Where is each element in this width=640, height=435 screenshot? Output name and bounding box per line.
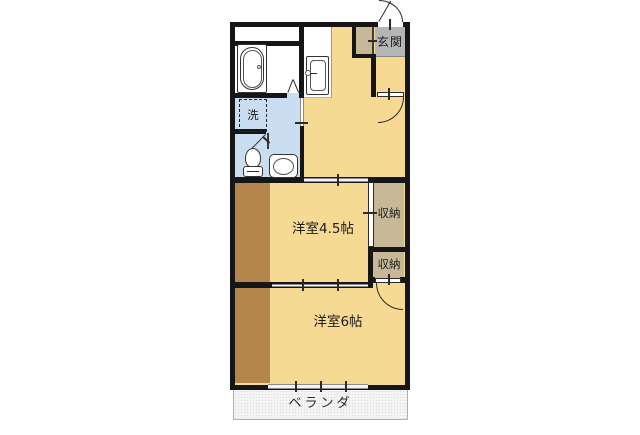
wash-basin-bowl: [273, 158, 294, 175]
toilet-icon: [245, 148, 261, 168]
balcony-window-tick-1: [295, 381, 297, 392]
balcony-window-tick-3: [345, 381, 347, 392]
kitchen-sink-basin: [310, 60, 326, 91]
room-45-label: 洋室4.5帖: [268, 222, 378, 237]
flooring-strip-room6: [235, 288, 270, 383]
shoe-cabinet-bottom-wall: [352, 54, 373, 58]
balcony-window: [268, 384, 368, 389]
storage-lower-label: 収納: [369, 258, 409, 271]
bathroom-bottom-wall: [233, 93, 287, 98]
entrance-door-arc-icon: [379, 0, 403, 22]
entrance-label: 玄関: [373, 36, 407, 49]
kitchen-faucet-spout: [310, 73, 317, 74]
washroom-right-wall: [300, 126, 304, 182]
storage-bottom-wall-left: [368, 277, 375, 283]
bathtub-drain: [257, 65, 261, 69]
entrance-door-opening: [378, 22, 403, 27]
bathroom-kitchen-wall: [299, 27, 304, 98]
room-slider-tick-2: [337, 279, 339, 291]
room-slider-tick-1: [302, 279, 304, 291]
flooring-strip-room45: [235, 182, 270, 282]
dk-room45-slider-tick: [337, 174, 339, 186]
floor-plan: ベランダ: [0, 0, 640, 435]
dk-room45-sliding-door: [304, 178, 368, 182]
washing-machine-space-icon: 洗: [239, 99, 267, 132]
veranda-label: ベランダ: [288, 397, 352, 411]
room-6-label: 洋室6帖: [292, 315, 384, 330]
veranda: ベランダ: [233, 389, 408, 420]
washroom-door-tick: [295, 122, 308, 124]
balcony-window-tick-2: [320, 381, 322, 392]
storage-mid-wall: [368, 247, 410, 252]
room45-room6-sliding-door: [272, 284, 368, 288]
hallway-wall: [371, 54, 376, 97]
toilet-tank-line: [247, 171, 259, 172]
laundry-label: 洗: [247, 109, 259, 122]
storage-upper-label: 収納: [369, 207, 409, 220]
